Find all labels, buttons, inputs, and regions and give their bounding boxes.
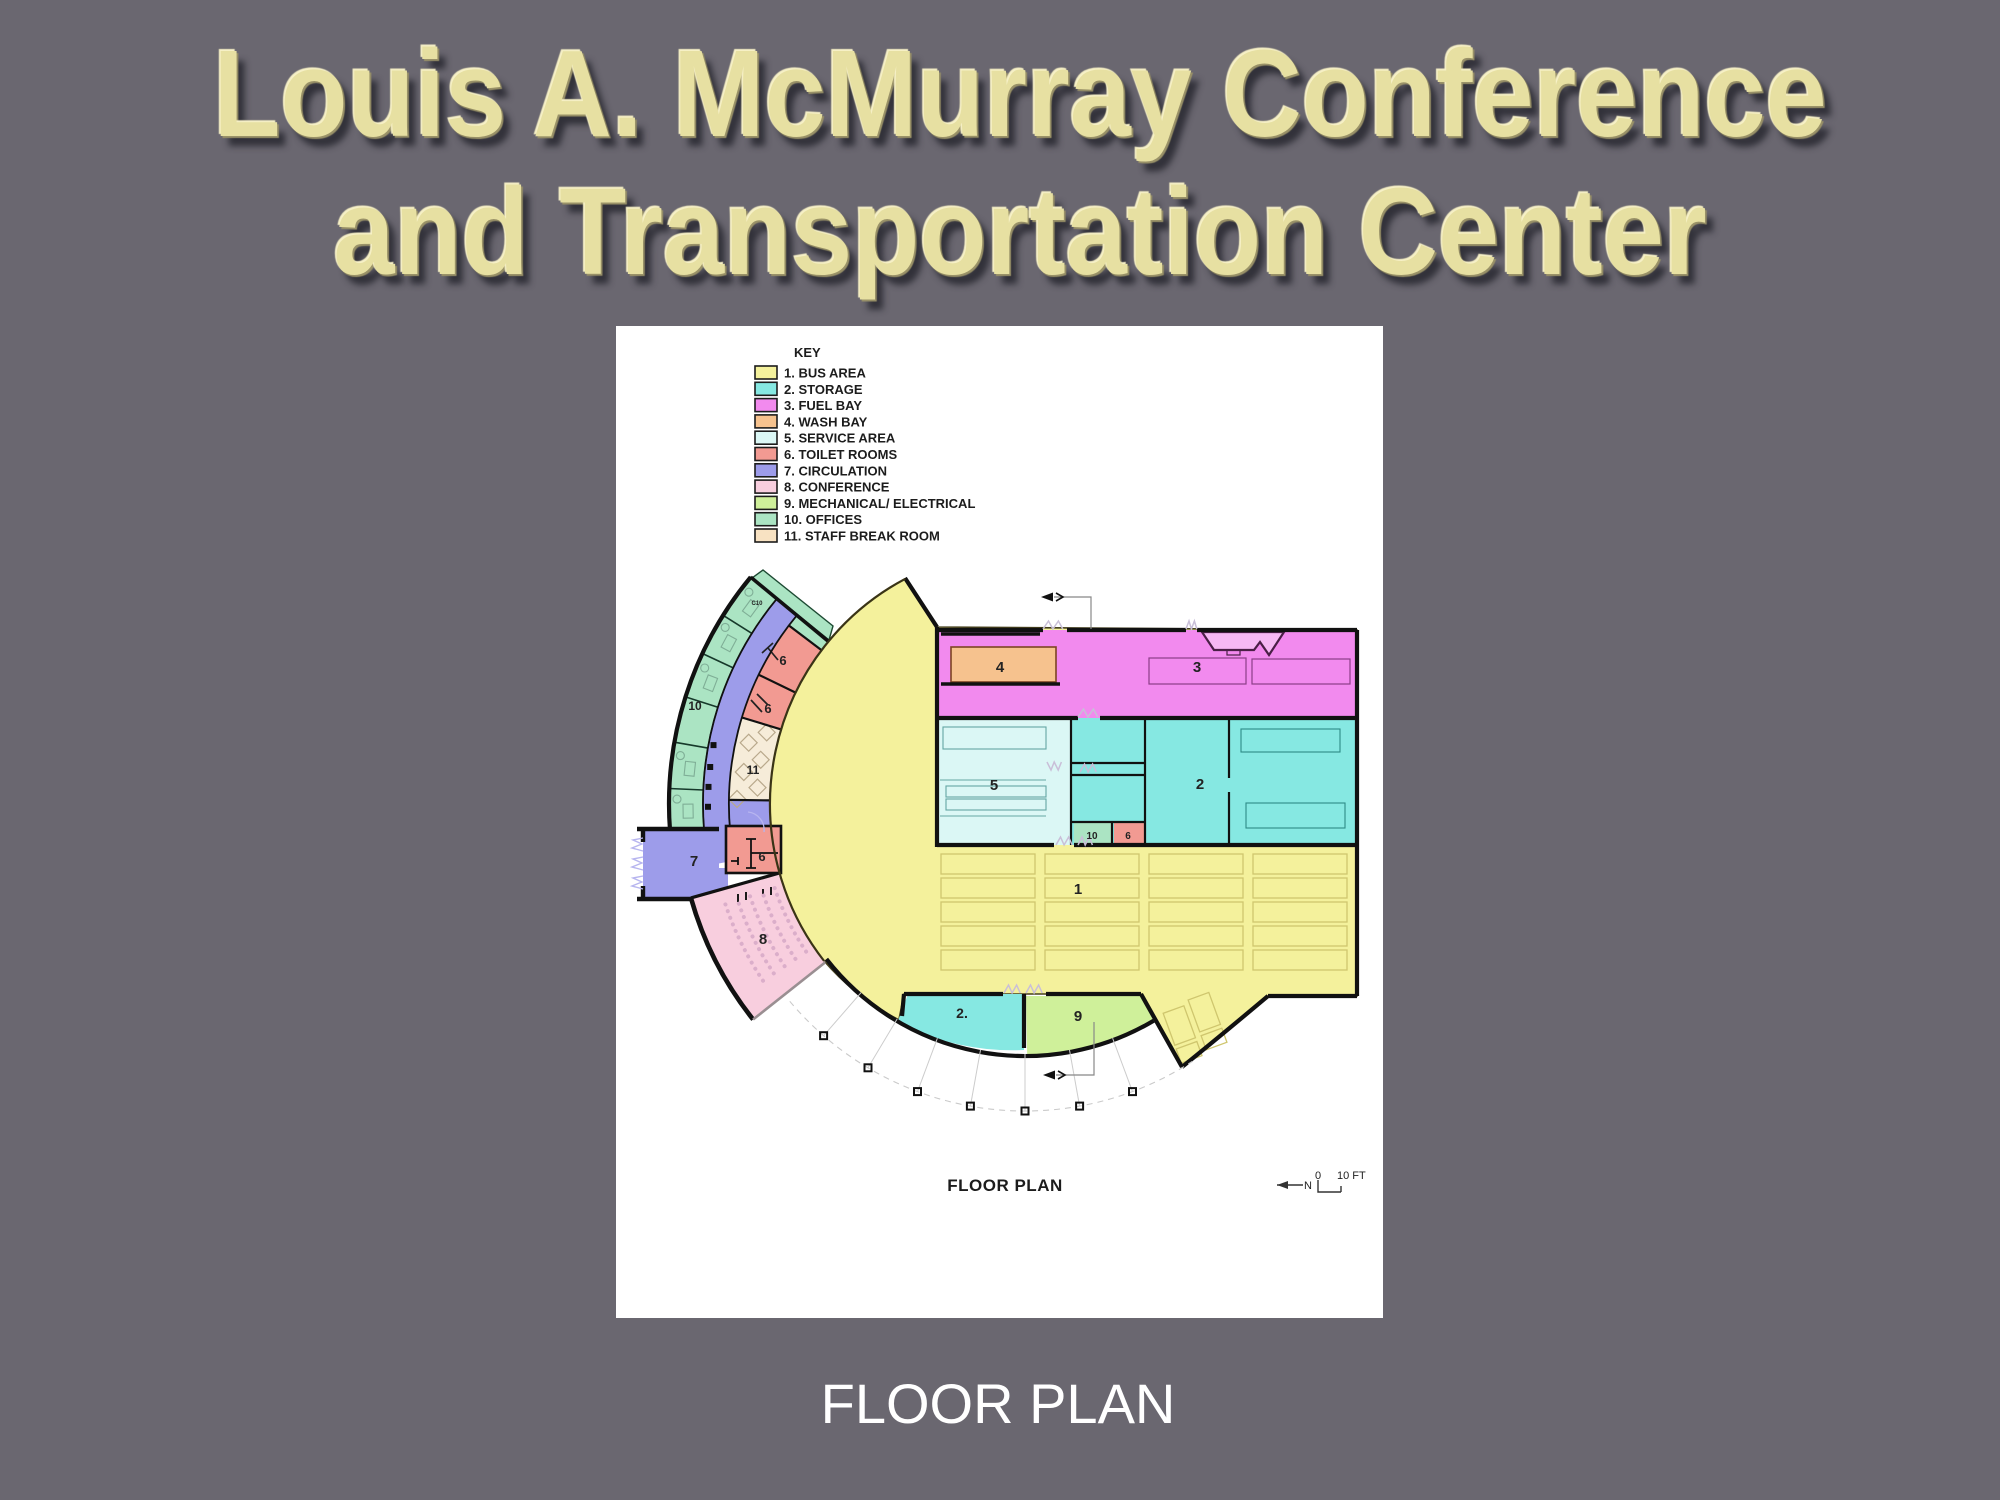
- svg-text:6. TOILET ROOMS: 6. TOILET ROOMS: [784, 447, 897, 462]
- svg-text:3: 3: [1193, 659, 1201, 676]
- svg-text:10: 10: [688, 699, 702, 713]
- svg-text:10. OFFICES: 10. OFFICES: [784, 512, 862, 527]
- svg-text:4. WASH BAY: 4. WASH BAY: [784, 414, 868, 429]
- svg-text:KEY: KEY: [794, 345, 821, 360]
- svg-text:5. SERVICE AREA: 5. SERVICE AREA: [784, 431, 896, 446]
- svg-text:C10: C10: [751, 601, 763, 607]
- svg-text:10 FT: 10 FT: [1337, 1170, 1366, 1182]
- svg-text:4: 4: [996, 659, 1005, 676]
- svg-text:5: 5: [990, 777, 998, 794]
- svg-text:10: 10: [1086, 831, 1098, 842]
- svg-text:N: N: [1304, 1180, 1312, 1192]
- svg-text:6: 6: [764, 701, 771, 716]
- svg-text:8. CONFERENCE: 8. CONFERENCE: [784, 480, 890, 495]
- svg-text:2. STORAGE: 2. STORAGE: [784, 382, 863, 397]
- svg-text:11. STAFF BREAK ROOM: 11. STAFF BREAK ROOM: [784, 529, 940, 544]
- svg-text:6: 6: [758, 849, 765, 864]
- svg-text:9: 9: [1074, 1008, 1082, 1025]
- svg-text:6: 6: [779, 653, 786, 668]
- svg-text:8: 8: [759, 931, 767, 948]
- svg-text:2.: 2.: [956, 1005, 968, 1021]
- svg-text:7: 7: [690, 853, 698, 870]
- svg-text:1: 1: [1074, 881, 1082, 898]
- svg-text:11: 11: [747, 763, 760, 777]
- svg-text:6: 6: [1125, 831, 1131, 842]
- svg-text:0: 0: [1315, 1170, 1321, 1182]
- svg-text:7. CIRCULATION: 7. CIRCULATION: [784, 463, 887, 478]
- svg-text:3. FUEL BAY: 3. FUEL BAY: [784, 398, 862, 413]
- svg-text:FLOOR PLAN: FLOOR PLAN: [947, 1176, 1063, 1195]
- svg-text:2: 2: [1196, 776, 1204, 793]
- svg-text:1. BUS AREA: 1. BUS AREA: [784, 366, 866, 381]
- svg-text:9. MECHANICAL/ ELECTRICAL: 9. MECHANICAL/ ELECTRICAL: [784, 496, 975, 511]
